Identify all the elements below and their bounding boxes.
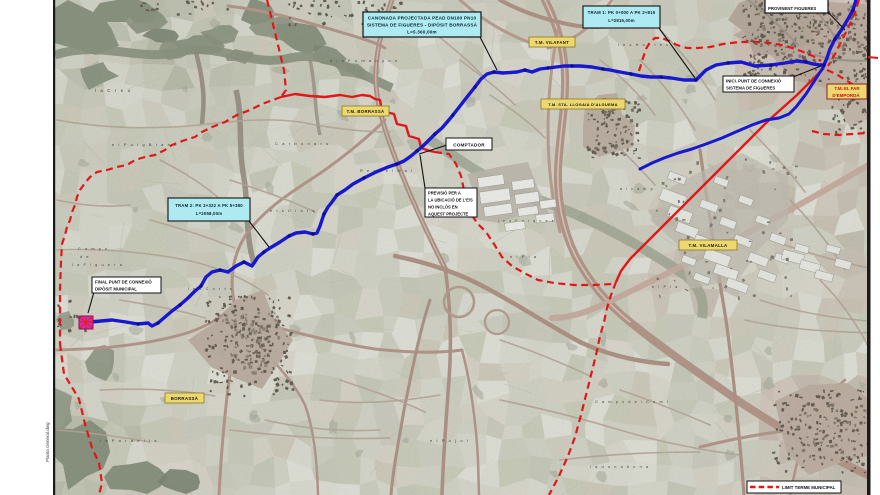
svg-text:PREVISIÓ PER A: PREVISIÓ PER A bbox=[428, 191, 461, 196]
svg-text:L=2058,00m: L=2058,00m bbox=[196, 211, 223, 216]
svg-text:LA UBICACIÓ DE L'E/S: LA UBICACIÓ DE L'E/S bbox=[428, 198, 473, 203]
svg-text:L=5.360,00m: L=5.360,00m bbox=[407, 30, 437, 35]
svg-text:T.M. BORRASSÀ: T.M. BORRASSÀ bbox=[347, 109, 385, 114]
svg-text:L=2815,00m: L=2815,00m bbox=[608, 18, 635, 23]
svg-text:DIPÒSIT MUNICIPAL: DIPÒSIT MUNICIPAL bbox=[95, 287, 137, 292]
svg-text:TRAM 2: PK 3+322 A PK 5+380: TRAM 2: PK 3+322 A PK 5+380 bbox=[175, 203, 243, 208]
svg-text:D'EMPORDÀ: D'EMPORDÀ bbox=[832, 92, 860, 98]
svg-text:SISTEMA DE FIGUERES: SISTEMA DE FIGUERES bbox=[726, 86, 775, 91]
svg-text:CANONADA PROJECTADA PEAD DN16: CANONADA PROJECTADA PEAD DN160 PN10 bbox=[368, 16, 477, 21]
svg-text:AQUEST PROJECTE: AQUEST PROJECTE bbox=[428, 212, 469, 217]
svg-text:TRAM 1: PK 0+000 A PK 2+815: TRAM 1: PK 0+000 A PK 2+815 bbox=[588, 10, 656, 15]
svg-text:SISTEMA DE FIGUERES - DIPÒSIT: SISTEMA DE FIGUERES - DIPÒSIT BORRASSÀ bbox=[367, 21, 478, 28]
svg-text:LIMIT TERME MUNICIPAL: LIMIT TERME MUNICIPAL bbox=[782, 485, 836, 490]
svg-text:NO INCLÒS EN: NO INCLÒS EN bbox=[428, 205, 458, 210]
svg-text:BORRASSÀ: BORRASSÀ bbox=[171, 396, 199, 401]
svg-text:COMPTADOR: COMPTADOR bbox=[453, 143, 485, 148]
svg-text:T.M. VILAFANT: T.M. VILAFANT bbox=[535, 40, 569, 45]
svg-text:T.M. EL FAR: T.M. EL FAR bbox=[834, 86, 860, 91]
svg-text:T.M. VILAMALLA: T.M. VILAMALLA bbox=[688, 243, 728, 248]
svg-text:Planta General.dwg: Planta General.dwg bbox=[45, 422, 50, 462]
svg-text:T.M. STA. LLOGAIA D'ALGUEMA: T.M. STA. LLOGAIA D'ALGUEMA bbox=[548, 102, 618, 107]
svg-text:INICI. PUNT DE CONNEXIÓ: INICI. PUNT DE CONNEXIÓ bbox=[726, 79, 782, 84]
svg-text:PROVINENT FIGUERES: PROVINENT FIGUERES bbox=[768, 6, 816, 11]
svg-text:FINAL PUNT DE CONNEXIÓ: FINAL PUNT DE CONNEXIÓ bbox=[95, 280, 152, 285]
